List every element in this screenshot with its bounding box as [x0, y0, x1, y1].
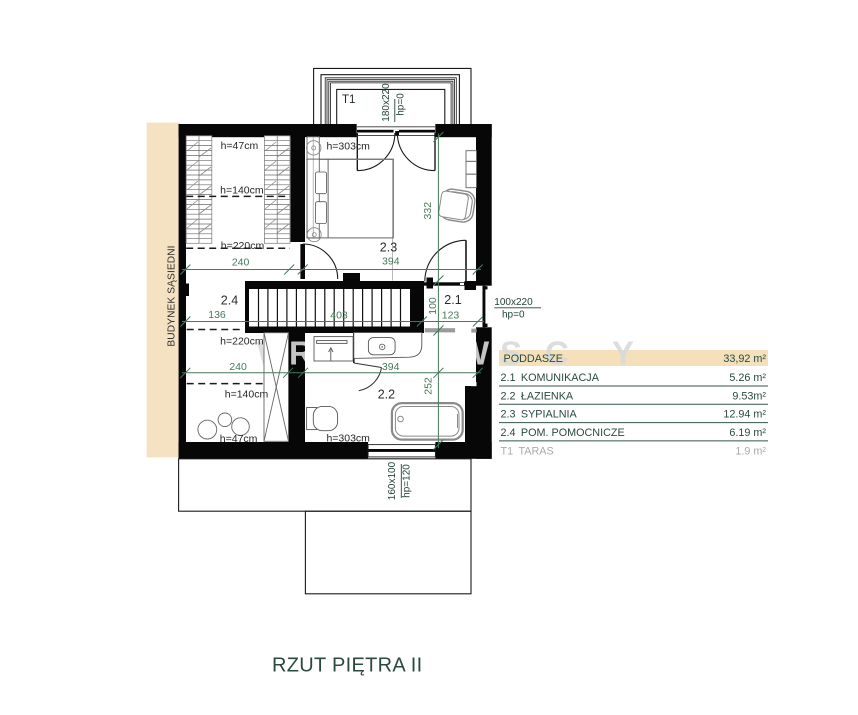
svg-text:h=220cm: h=220cm	[221, 240, 265, 252]
svg-text:12.94 m²: 12.94 m²	[723, 409, 766, 421]
svg-text:BUDYNEK SĄSIEDNI: BUDYNEK SĄSIEDNI	[167, 245, 178, 346]
svg-text:1.9 m²: 1.9 m²	[735, 445, 766, 457]
svg-text:180x220: 180x220	[381, 83, 392, 122]
svg-text:394: 394	[382, 256, 400, 268]
svg-text:136: 136	[208, 309, 226, 321]
svg-text:h=47cm: h=47cm	[221, 140, 259, 152]
svg-text:2.3: 2.3	[380, 241, 397, 255]
svg-text:2.2 ŁAZIENKA: 2.2 ŁAZIENKA	[501, 390, 574, 402]
svg-text:240: 240	[229, 361, 247, 373]
svg-text:PODDASZE: PODDASZE	[504, 353, 563, 365]
svg-text:h=140cm: h=140cm	[220, 185, 264, 197]
svg-text:160x100: 160x100	[387, 461, 398, 500]
svg-text:h=47cm: h=47cm	[220, 433, 258, 445]
svg-text:2.1: 2.1	[444, 293, 461, 307]
svg-text:252: 252	[423, 377, 435, 395]
svg-text:9.53m²: 9.53m²	[732, 390, 766, 402]
svg-text:2.1 KOMUNIKACJA: 2.1 KOMUNIKACJA	[501, 372, 600, 384]
svg-text:2.4 POM. POMOCNICZE: 2.4 POM. POMOCNICZE	[501, 427, 625, 439]
svg-text:33,92 m²: 33,92 m²	[723, 353, 766, 365]
svg-text:hp=0: hp=0	[502, 310, 525, 321]
svg-text:123: 123	[442, 310, 460, 322]
svg-text:hp=120: hp=120	[402, 464, 413, 498]
svg-text:6.19 m²: 6.19 m²	[729, 427, 766, 439]
svg-text:403: 403	[330, 310, 348, 322]
svg-text:240: 240	[232, 257, 250, 269]
svg-text:h=220cm: h=220cm	[220, 336, 264, 348]
svg-text:h=303cm: h=303cm	[326, 432, 370, 444]
svg-text:T1 TARAS: T1 TARAS	[501, 445, 554, 457]
svg-text:100: 100	[427, 297, 439, 315]
svg-text:394: 394	[382, 361, 400, 373]
svg-text:T1: T1	[342, 94, 355, 106]
svg-text:2.4: 2.4	[221, 294, 238, 308]
svg-text:100x220: 100x220	[494, 297, 533, 308]
svg-text:332: 332	[422, 202, 434, 220]
svg-text:2.2: 2.2	[378, 388, 395, 402]
svg-text:h=303cm: h=303cm	[326, 141, 370, 153]
svg-text:RZUT PIĘTRA II: RZUT PIĘTRA II	[272, 655, 423, 677]
svg-text:2.3 SYPIALNIA: 2.3 SYPIALNIA	[501, 409, 578, 421]
svg-text:hp=0: hp=0	[396, 93, 407, 116]
svg-text:h=140cm: h=140cm	[225, 389, 269, 401]
svg-text:5.26 m²: 5.26 m²	[729, 372, 766, 384]
